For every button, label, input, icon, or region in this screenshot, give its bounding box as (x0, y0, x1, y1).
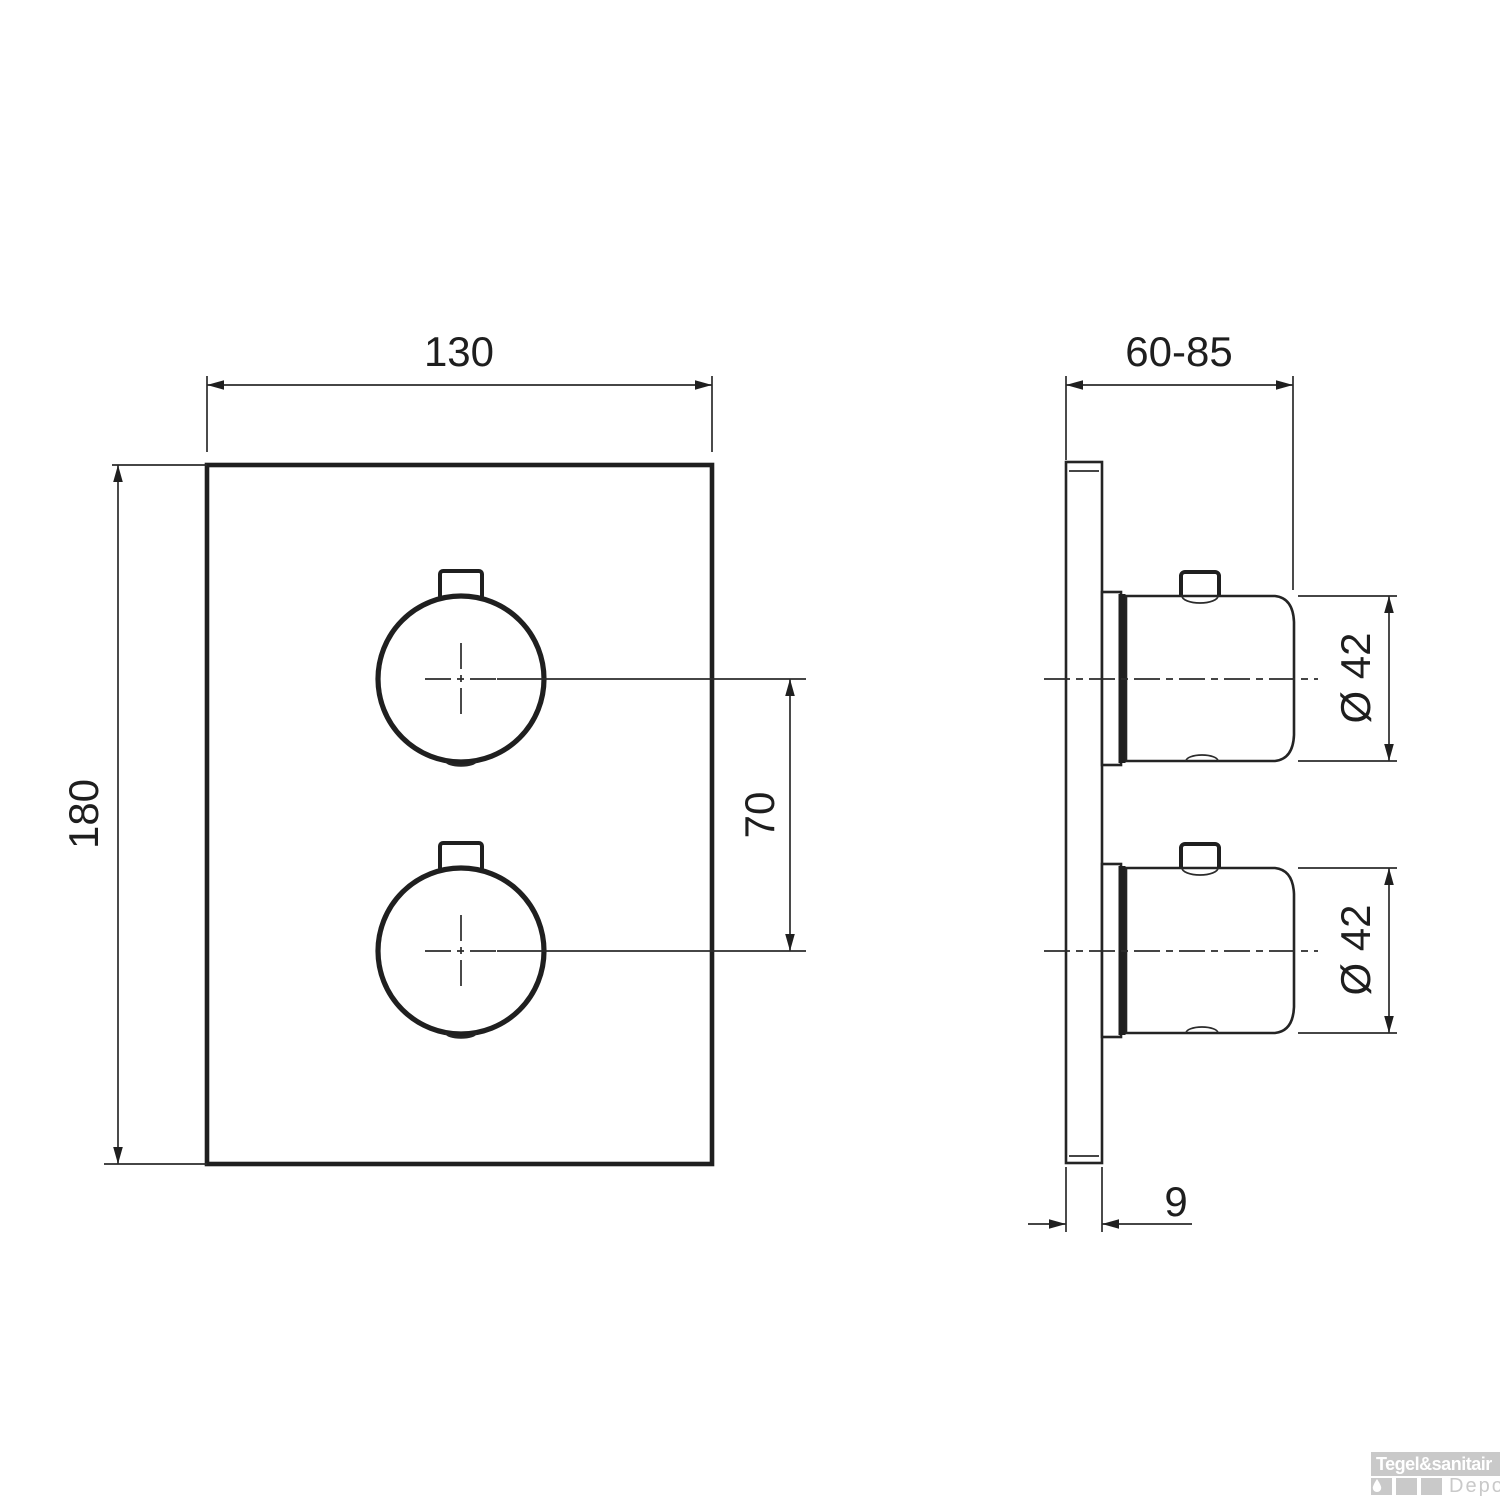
watermark-banner: Tegel&sanitair (1371, 1452, 1500, 1476)
arrow-right-icon (1049, 1219, 1066, 1229)
arrow-left-icon (207, 380, 224, 390)
watermark-square (1396, 1478, 1417, 1495)
arrow-right-icon (1276, 380, 1293, 390)
arrow-right-icon (695, 380, 712, 390)
dim-label-thickness: 9 (1164, 1178, 1187, 1225)
side-plate-profile (1066, 462, 1102, 1163)
dim-label-width: 130 (424, 328, 494, 375)
dimension-width-130: 130 (207, 328, 712, 452)
watermark-subbrand-text: Depot (1449, 1478, 1500, 1495)
technical-drawing-page: 130 180 70 (0, 0, 1500, 1500)
dimension-diameter-bottom-42: Ø 42 (1298, 868, 1397, 1033)
side-view (1044, 462, 1318, 1163)
arrow-left-icon (1102, 1219, 1119, 1229)
watermark-row: Depot (1371, 1478, 1500, 1495)
arrow-up-icon (785, 679, 795, 696)
arrow-down-icon (785, 934, 795, 951)
arrow-down-icon (1384, 1016, 1394, 1033)
watermark-square (1371, 1478, 1392, 1495)
arrow-up-icon (1384, 868, 1394, 885)
arrow-down-icon (1384, 744, 1394, 761)
front-view (207, 465, 806, 1164)
watermark-square (1421, 1478, 1442, 1495)
dim-label-diameter-top: Ø 42 (1332, 632, 1379, 723)
dimension-diameter-top-42: Ø 42 (1298, 596, 1397, 761)
arrow-up-icon (113, 465, 123, 482)
dim-label-depth: 60-85 (1125, 328, 1232, 375)
shower-valve-dimension-drawing: 130 180 70 (0, 0, 1500, 1500)
dim-label-height: 180 (60, 779, 107, 849)
dim-label-diameter-bottom: Ø 42 (1332, 904, 1379, 995)
dim-label-spacing: 70 (736, 792, 783, 839)
dimension-height-180: 180 (60, 465, 207, 1164)
dimension-plate-thickness-9: 9 (1028, 1167, 1192, 1232)
watermark-brand-text: Tegel&sanitair (1376, 1454, 1492, 1474)
arrow-up-icon (1384, 596, 1394, 613)
dimension-spacing-70: 70 (736, 679, 795, 951)
droplet-icon (1371, 1478, 1383, 1493)
arrow-down-icon (113, 1147, 123, 1164)
arrow-left-icon (1066, 380, 1083, 390)
